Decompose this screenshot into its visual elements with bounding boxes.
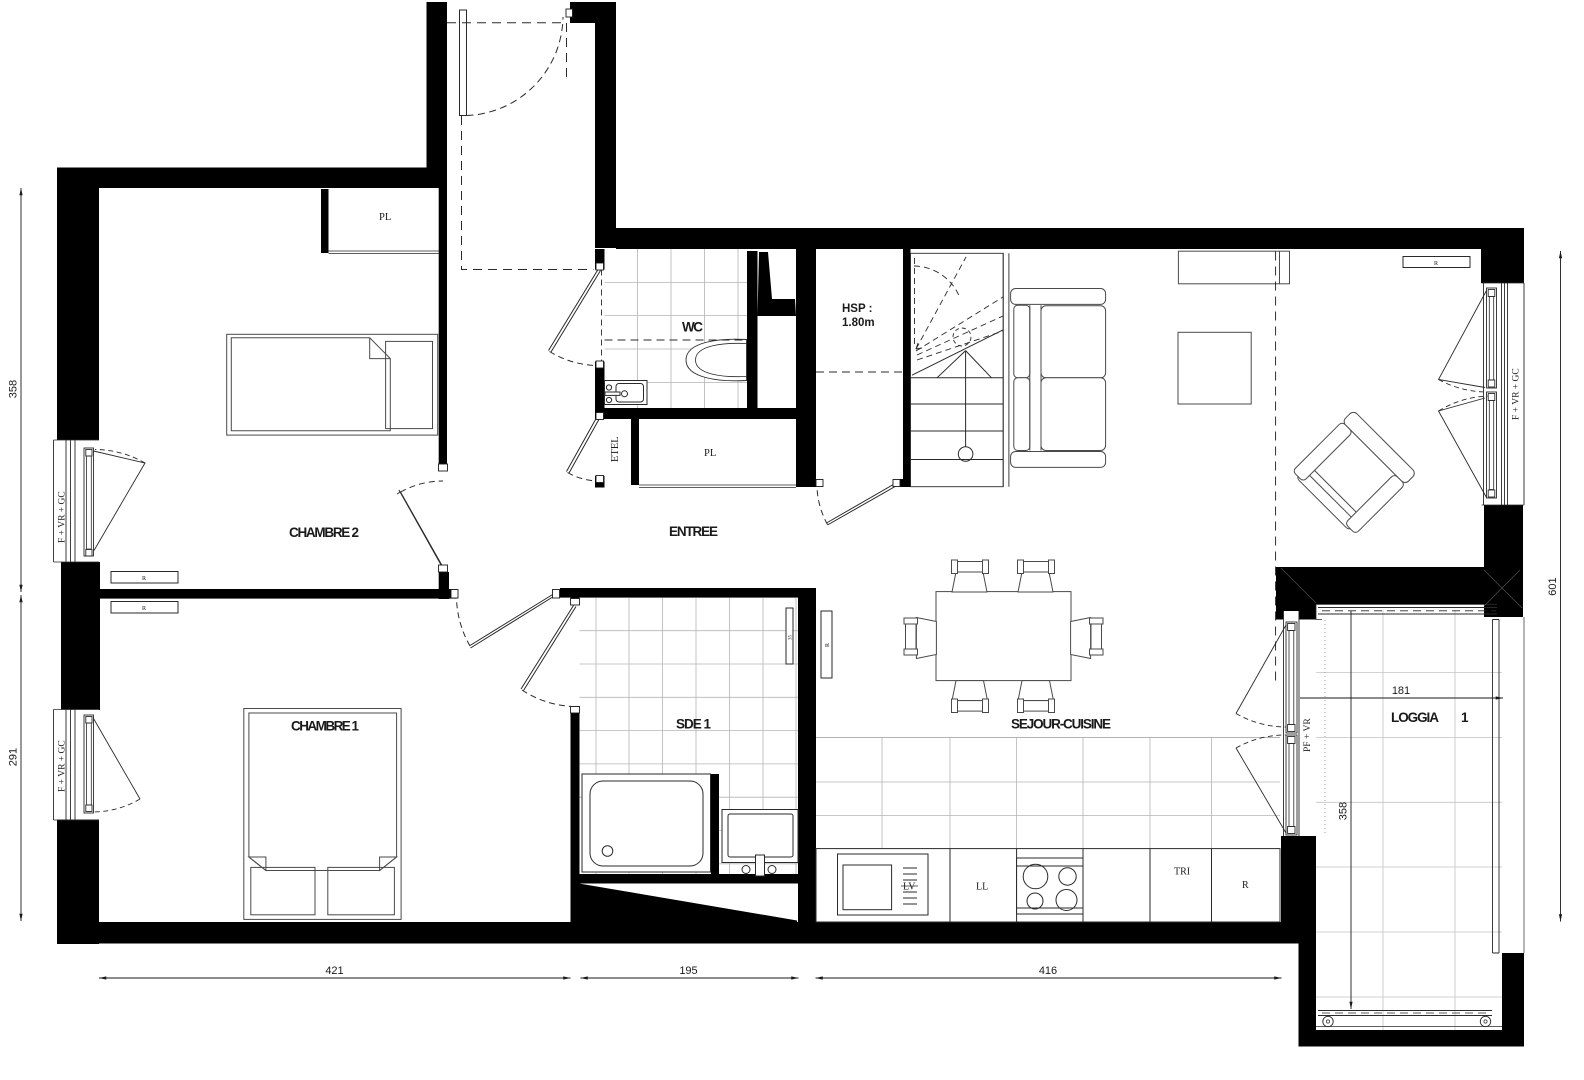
svg-text:601: 601 [1547, 577, 1559, 595]
svg-text:195: 195 [679, 965, 697, 977]
svg-text:35: 35 [789, 635, 794, 641]
svg-text:1: 1 [1461, 710, 1469, 725]
svg-text:SEJOUR-CUISINE: SEJOUR-CUISINE [1011, 717, 1111, 732]
svg-text:R: R [142, 606, 146, 612]
svg-text:R: R [1434, 261, 1438, 267]
svg-text:1.80m: 1.80m [842, 317, 875, 329]
svg-text:SDE 1: SDE 1 [676, 717, 711, 732]
svg-text:CHAMBRE 2: CHAMBRE 2 [289, 525, 359, 540]
svg-text:358: 358 [1338, 802, 1350, 820]
svg-text:LV: LV [903, 882, 916, 893]
svg-text:421: 421 [325, 965, 343, 977]
svg-text:F + VR + GC: F + VR + GC [58, 491, 68, 543]
svg-text:ENTREE: ENTREE [669, 524, 718, 539]
svg-text:R: R [142, 576, 146, 582]
svg-text:358: 358 [8, 380, 20, 398]
svg-text:291: 291 [8, 748, 20, 766]
svg-text:PL: PL [704, 448, 716, 459]
svg-text:CHAMBRE 1: CHAMBRE 1 [291, 719, 359, 734]
svg-text:WC: WC [682, 320, 703, 335]
svg-text:PL: PL [379, 212, 391, 223]
svg-text:LOGGIA: LOGGIA [1391, 710, 1439, 725]
svg-text:F + VR + GC: F + VR + GC [1512, 368, 1522, 420]
svg-text:181: 181 [1392, 685, 1410, 697]
svg-text:416: 416 [1039, 965, 1057, 977]
svg-text:LL: LL [976, 882, 988, 893]
svg-text:R: R [1242, 880, 1249, 891]
svg-text:ETEL: ETEL [610, 436, 621, 462]
svg-text:F + VR + GC: F + VR + GC [58, 740, 68, 792]
svg-text:HSP :: HSP : [842, 303, 872, 315]
svg-text:TRI: TRI [1174, 867, 1190, 878]
svg-text:R: R [825, 643, 831, 647]
svg-text:PF + VR: PF + VR [1303, 718, 1313, 752]
